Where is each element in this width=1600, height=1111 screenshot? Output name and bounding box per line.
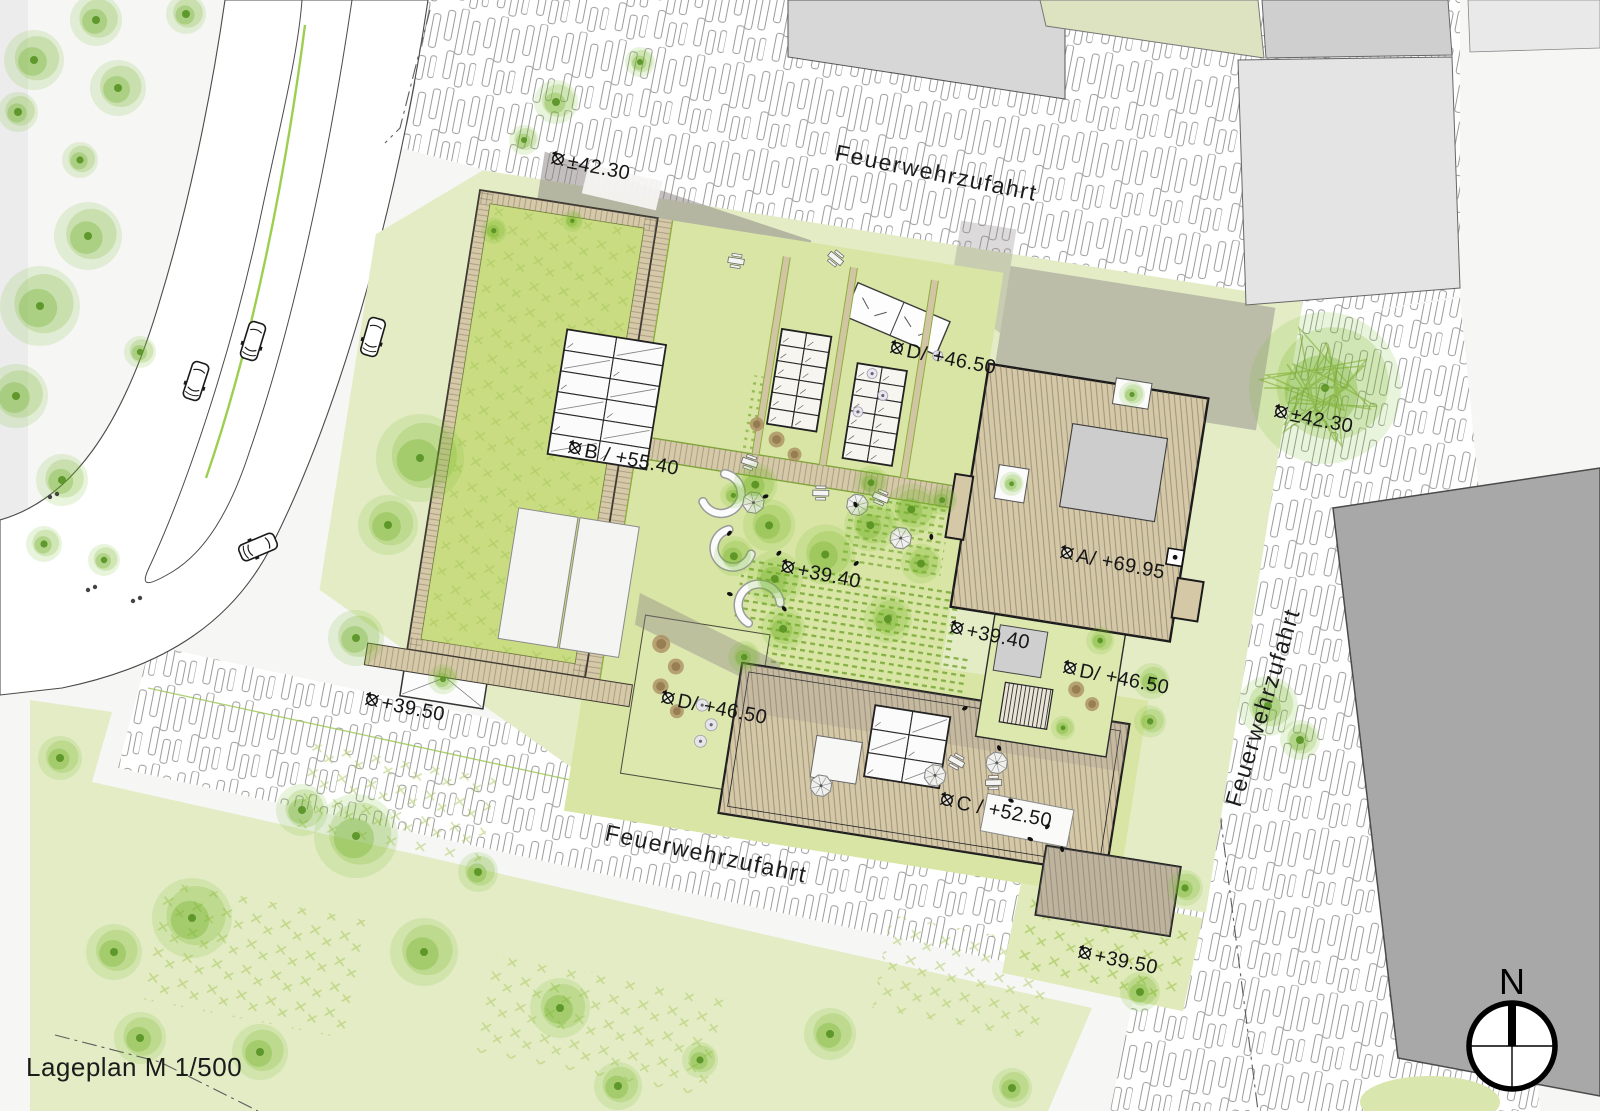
building-a-courtyard [1060,424,1168,522]
tree [314,794,398,878]
bollard [48,495,52,499]
tree [530,978,590,1038]
tree [509,125,539,155]
tree [4,30,64,90]
tree [594,1062,642,1110]
tree [376,414,464,502]
tree [62,142,98,178]
building-corner [1468,0,1600,52]
tree [1280,720,1320,760]
d-east-stairs [999,682,1053,729]
tree [36,454,88,506]
building-northeast-upper [1262,0,1452,58]
tree [86,924,142,980]
bollard [93,585,97,589]
site-plan-page: Feuerwehrzufahrt Feuerwehrzufahrt Feuerw… [0,0,1600,1111]
tree [0,266,80,346]
bollard [131,599,135,603]
tree [1249,312,1401,464]
plan-title: Lageplan M 1/500 [26,1052,242,1082]
tree [124,336,156,368]
site-plan-canvas: Feuerwehrzufahrt Feuerwehrzufahrt Feuerw… [0,0,1600,1111]
tree [390,918,458,986]
tree [625,47,655,77]
tree [992,1068,1032,1108]
tree [90,60,146,116]
tree [26,526,62,562]
tree [358,495,418,555]
tree [804,1008,856,1060]
tree [328,610,384,666]
tree [152,878,232,958]
bollard [138,596,142,600]
tree [458,852,498,892]
tree [38,736,82,780]
tree [88,544,120,576]
tree [682,1042,718,1078]
building-northeast [1238,57,1460,305]
tree [1167,870,1203,906]
compass-needle [1508,1003,1516,1046]
tree [54,202,122,270]
tree [534,80,578,124]
bollard [55,492,59,496]
bollard [86,588,90,592]
north-label: N [1499,961,1525,1002]
